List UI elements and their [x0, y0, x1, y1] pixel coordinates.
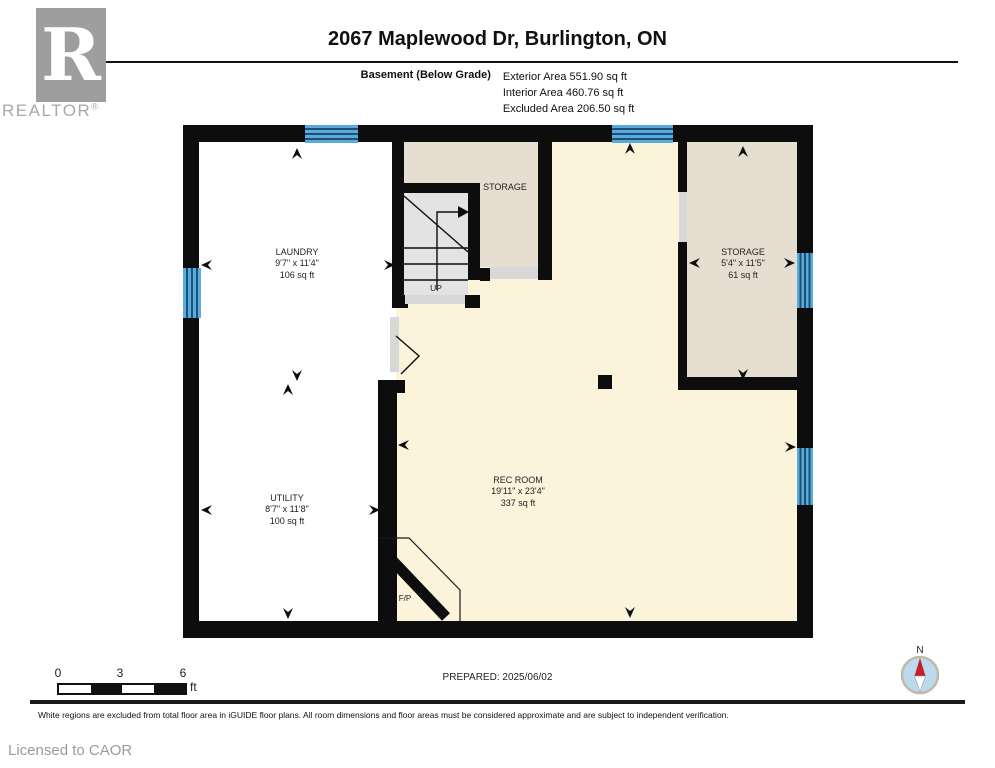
page-title: 2067 Maplewood Dr, Burlington, ON: [0, 28, 995, 51]
room-name: STORAGE: [721, 247, 765, 258]
room-dims: 8'7" x 11'8": [265, 504, 309, 515]
prepared-date: PREPARED: 2025/06/02: [0, 672, 995, 683]
arrow-left-icon: [201, 260, 212, 270]
plan-detail-overlay: [183, 125, 813, 638]
disclaimer-text: White regions are excluded from total fl…: [38, 710, 968, 720]
interior-area: Interior Area 460.76 sq ft: [503, 85, 634, 101]
room-area: 61 sq ft: [721, 270, 765, 281]
laundry-label: LAUNDRY 9'7" x 11'4" 106 sq ft: [275, 247, 319, 281]
storage-small-label: STORAGE: [483, 182, 527, 193]
room-area: 106 sq ft: [275, 270, 319, 281]
scale-bar: [57, 683, 187, 695]
excluded-area: Excluded Area 206.50 sq ft: [503, 101, 634, 117]
arrow-up-icon: [625, 143, 635, 154]
stair-up-label: UP: [430, 283, 442, 293]
room-dims: 9'7" x 11'4": [275, 258, 319, 269]
arrow-up-icon: [292, 148, 302, 159]
arrow-up-icon: [283, 384, 293, 395]
dimension-arrows: [201, 143, 796, 619]
header-divider: [37, 61, 958, 63]
utility-label: UTILITY 8'7" x 11'8" 100 sq ft: [265, 493, 309, 527]
fireplace: [378, 538, 460, 621]
arrow-right-icon: [784, 258, 795, 268]
room-dims: 5'4" x 11'5": [721, 258, 765, 269]
arrow-left-icon: [689, 258, 700, 268]
rec-room-label: REC ROOM 19'11" x 23'4" 337 sq ft: [491, 475, 545, 509]
arrow-left-icon: [398, 440, 409, 450]
arrow-left-icon: [201, 505, 212, 515]
arrow-right-icon: [369, 505, 380, 515]
arrow-right-icon: [785, 442, 796, 452]
room-name: UTILITY: [265, 493, 309, 504]
compass-icon: N: [896, 641, 944, 697]
room-name: LAUNDRY: [275, 247, 319, 258]
door-swing-icon: [396, 336, 419, 374]
room-dims: 19'11" x 23'4": [491, 486, 545, 497]
arrow-right-icon: [384, 260, 395, 270]
floor-summary: Basement (Below Grade) Exterior Area 551…: [0, 69, 995, 117]
footer-divider: [30, 700, 965, 704]
arrow-down-icon: [625, 607, 635, 618]
room-name: STORAGE: [483, 182, 527, 193]
room-name: REC ROOM: [491, 475, 545, 486]
stair-direction-arrowhead-icon: [458, 206, 469, 218]
compass-north-label: N: [916, 645, 923, 656]
realtor-logo-r-icon: R: [41, 19, 101, 91]
exterior-area: Exterior Area 551.90 sq ft: [503, 69, 634, 85]
room-area: 100 sq ft: [265, 516, 309, 527]
floorplan-drawing: LAUNDRY 9'7" x 11'4" 106 sq ft STORAGE S…: [183, 125, 813, 638]
fireplace-label: F/P: [399, 594, 411, 603]
room-area: 337 sq ft: [491, 498, 545, 509]
arrow-down-icon: [283, 608, 293, 619]
arrow-down-icon: [738, 369, 748, 380]
licensed-to: Licensed to CAOR: [8, 742, 132, 759]
floor-label: Basement (Below Grade): [361, 69, 491, 81]
floorplan-page: R REALTOR® 2067 Maplewood Dr, Burlington…: [0, 0, 995, 768]
arrow-up-icon: [738, 146, 748, 157]
area-summary: Exterior Area 551.90 sq ft Interior Area…: [503, 69, 634, 117]
stair-direction-line: [437, 212, 459, 290]
arrow-down-icon: [292, 370, 302, 381]
realtor-logo: R: [36, 8, 106, 102]
storage-right-label: STORAGE 5'4" x 11'5" 61 sq ft: [721, 247, 765, 281]
